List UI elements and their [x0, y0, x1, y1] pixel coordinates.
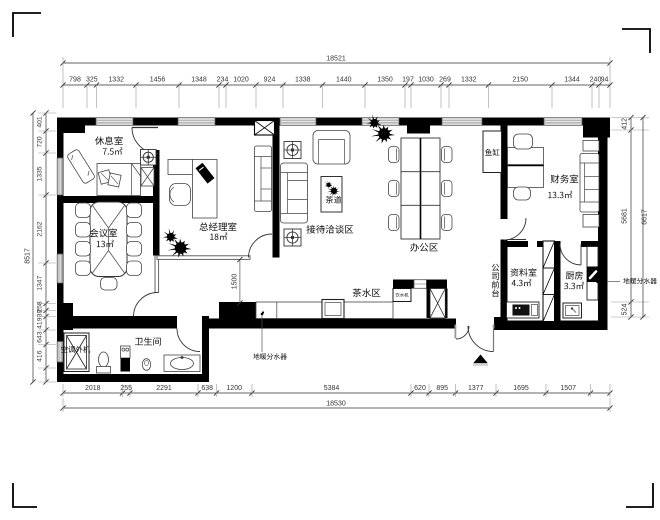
svg-text:18521: 18521	[326, 56, 346, 63]
svg-text:1335: 1335	[37, 166, 44, 181]
svg-text:5384: 5384	[324, 385, 340, 392]
svg-text:5681: 5681	[622, 208, 629, 224]
svg-text:1020: 1020	[233, 77, 249, 84]
svg-text:2018: 2018	[85, 385, 101, 392]
svg-text:620: 620	[414, 385, 426, 392]
svg-text:1507: 1507	[560, 385, 576, 392]
svg-text:94: 94	[601, 77, 609, 84]
svg-text:1338: 1338	[295, 77, 311, 84]
svg-text:1030: 1030	[418, 77, 434, 84]
svg-text:1377: 1377	[468, 385, 484, 392]
svg-text:524: 524	[622, 304, 629, 316]
svg-text:643: 643	[37, 331, 44, 343]
svg-text:269: 269	[439, 77, 451, 84]
svg-text:2162: 2162	[37, 221, 44, 236]
svg-text:1348: 1348	[191, 77, 207, 84]
svg-text:798: 798	[69, 77, 81, 84]
svg-text:924: 924	[264, 77, 276, 84]
svg-text:6617: 6617	[642, 209, 649, 225]
svg-text:638: 638	[201, 385, 213, 392]
svg-text:1440: 1440	[336, 77, 352, 84]
svg-text:1695: 1695	[513, 385, 529, 392]
svg-text:895: 895	[436, 385, 448, 392]
svg-text:18530: 18530	[326, 401, 346, 408]
svg-text:1200: 1200	[226, 385, 242, 392]
svg-text:255: 255	[120, 385, 132, 392]
svg-text:416: 416	[37, 350, 44, 362]
svg-text:1344: 1344	[564, 77, 580, 84]
svg-text:234: 234	[217, 77, 229, 84]
svg-text:401: 401	[37, 116, 44, 128]
svg-text:8517: 8517	[25, 248, 32, 264]
svg-text:1332: 1332	[108, 77, 124, 84]
svg-text:2150: 2150	[512, 77, 528, 84]
svg-text:1500: 1500	[232, 274, 239, 290]
svg-text:325: 325	[86, 77, 98, 84]
svg-text:1332: 1332	[461, 77, 477, 84]
svg-text:197: 197	[402, 77, 414, 84]
svg-text:412: 412	[622, 118, 629, 130]
svg-text:2291: 2291	[156, 385, 172, 392]
svg-text:1456: 1456	[150, 77, 166, 84]
svg-text:720: 720	[37, 136, 44, 148]
svg-text:1350: 1350	[377, 77, 393, 84]
svg-text:1347: 1347	[37, 275, 44, 290]
svg-text:419: 419	[37, 317, 44, 329]
